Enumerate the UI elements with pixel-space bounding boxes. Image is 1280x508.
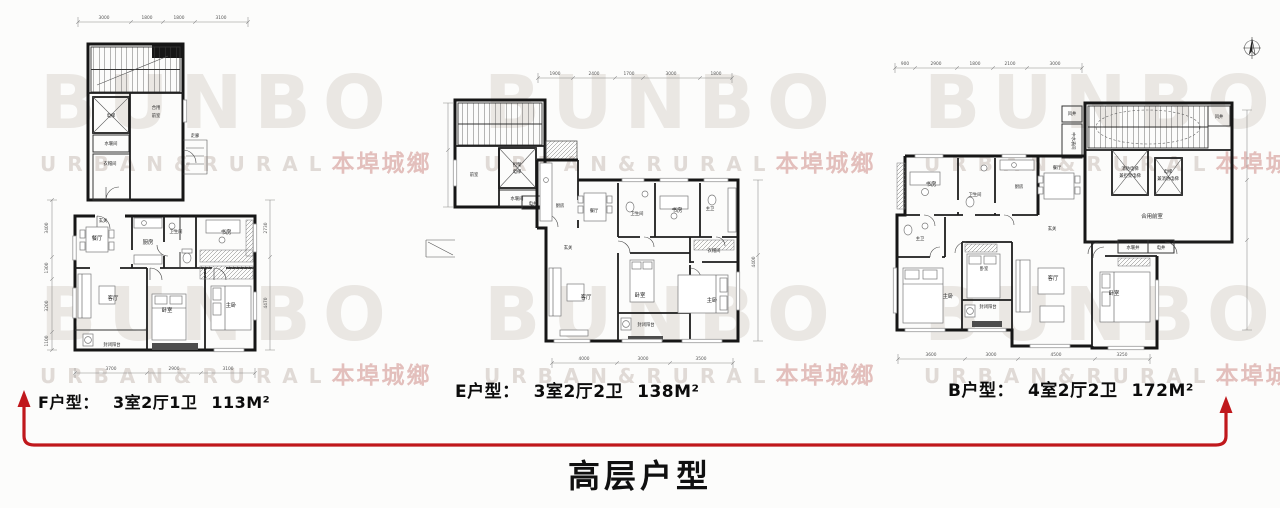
dim-label: 3700 [106, 366, 117, 372]
room-label-entry: 玄关 [564, 244, 573, 251]
room-label-living: 客厅 [1048, 274, 1059, 282]
dim-label: 2900 [931, 61, 942, 67]
dim-label: 1700 [624, 71, 635, 77]
dim-label: 1800 [970, 61, 981, 67]
room-label-mbath: 主卫 [916, 235, 925, 242]
dim-label: 3000 [986, 352, 997, 358]
dim-label: 3200 [44, 300, 50, 311]
room-label-kitchen: 厨房 [143, 238, 154, 246]
room-label-living: 客厅 [581, 293, 592, 301]
room-label-study: 书房 [672, 206, 683, 214]
floorplans-drawing: 3000 1800 1800 3100 3700 2900 3100 3400 … [0, 0, 1280, 508]
room-label-bed2: 卧室 [980, 265, 989, 272]
room-label-elevator: 电梯 [107, 112, 116, 119]
room-label-closet: 衣帽间 [708, 247, 721, 254]
room-label-bath: 卫生间 [631, 210, 644, 217]
room-label-entry: 玄关 [1048, 225, 1057, 232]
room-label-wardrobe: 衣帽间 [104, 160, 117, 167]
dim-label: 3000 [666, 71, 677, 77]
room-label-bed: 卧室 [162, 306, 173, 314]
room-label-vestibule: 前室 [152, 112, 161, 119]
dim-label: 4000 [579, 356, 590, 362]
room-label-master: 主卧 [707, 296, 718, 304]
room-label-midwater: 中水表间 [1070, 132, 1077, 149]
plan-b-caption: B户型：4室2厅2卫172M² [948, 376, 1194, 401]
room-label-mbath: 主卫 [706, 205, 715, 212]
plan-e-windows [453, 160, 739, 343]
dim-label: 2100 [1005, 61, 1016, 67]
room-label-balcony: 封闭阳台 [637, 321, 654, 328]
room-label-corridor: 走廊 [191, 132, 200, 139]
dim-label: 1800 [142, 15, 153, 21]
room-label-elevator: 电梯 [1164, 168, 1173, 175]
plan-e-caption-name: E户型： [455, 382, 520, 402]
dim-label: 900 [901, 61, 909, 67]
room-label-balcony: 封闭阳台 [979, 303, 996, 310]
room-label-lift: 担架 [513, 161, 522, 168]
room-label-elevator: 兼消防电梯 [1157, 175, 1179, 182]
room-label-bed3: 卧室 [1109, 289, 1120, 297]
dim-label: 3000 [1050, 61, 1061, 67]
room-label-vestibule: 合用 [152, 104, 161, 111]
scanned-floorplan-sheet: BUNBO U R B A N & R U R A L本埠城鄉 BUNBO U … [0, 0, 1280, 508]
plan-f-caption-name: F户型： [38, 393, 99, 412]
room-label-kitchen: 厨房 [1015, 183, 1024, 190]
room-label-front: 前室 [470, 171, 479, 178]
room-label-dining: 餐厅 [92, 234, 103, 242]
plan-e-caption: E户型：3室2厅2卫138M² [455, 377, 699, 402]
room-label-study: 书房 [926, 180, 937, 188]
plan-e: 1900 2400 1700 3000 1800 4000 3000 3500 … [426, 71, 763, 368]
room-label-shaft: 风井 [1068, 110, 1077, 117]
room-label-dining: 餐厅 [1053, 164, 1062, 171]
room-label-study: 书房 [221, 228, 232, 236]
room-label-fire-elevator: 消防电梯 [1121, 165, 1139, 172]
plan-b-caption-name: B户型： [948, 381, 1014, 401]
room-label-bath: 卫生间 [170, 228, 183, 235]
plan-e-caption-area: 138M² [637, 382, 699, 402]
dim-label: 2400 [589, 71, 600, 77]
room-label-dining: 餐厅 [590, 207, 599, 214]
room-label-water: 水暖间 [105, 140, 118, 147]
dim-label: 4500 [1051, 352, 1062, 358]
room-label-wshaft: 水暖井 [1127, 244, 1141, 251]
dim-label: 4470 [263, 297, 269, 308]
room-label-eshaft: 电井 [1157, 244, 1166, 251]
room-label-shaft: 风井 [1215, 113, 1224, 120]
room-label-master: 主卧 [226, 301, 237, 309]
plan-f: 3000 1800 1800 3100 3700 2900 3100 3400 … [44, 15, 275, 378]
plan-b: 900 2900 1800 2100 3000 3600 3000 4500 3… [893, 37, 1261, 364]
dim-label: 3000 [638, 356, 649, 362]
dim-label: 1800 [711, 71, 722, 77]
dim-label: 2900 [169, 366, 180, 372]
page-title: 高层户型 [0, 451, 1280, 497]
dim-label: 3600 [926, 352, 937, 358]
dim-label: 3100 [223, 366, 234, 372]
north-compass-icon [1243, 37, 1261, 59]
room-label-fire-elevator: 兼担架电梯 [1119, 172, 1141, 179]
room-label-kitchen: 厨房 [556, 202, 565, 209]
plan-b-walls [897, 103, 1232, 348]
room-label-water: 水暖间 [511, 195, 524, 202]
plan-e-caption-layout: 3室2厅2卫 [534, 382, 624, 402]
plan-f-caption-layout: 3室2厅1卫 [113, 393, 197, 412]
plan-b-caption-layout: 4室2厅2卫 [1028, 381, 1118, 401]
dim-label: 3400 [44, 222, 50, 233]
room-label-master: 主卧 [943, 292, 954, 300]
room-label-entry: 玄关 [99, 217, 108, 224]
dim-label: 1100 [44, 335, 50, 346]
room-label-balcony: 封闭阳台 [103, 341, 120, 348]
dim-label: 1300 [44, 262, 50, 273]
room-label-bed: 卧室 [635, 291, 646, 299]
dim-label: 2730 [263, 222, 269, 233]
plan-b-caption-area: 172M² [1131, 381, 1193, 401]
plan-f-caption-area: 113M² [211, 393, 270, 412]
dim-label: 4400 [751, 256, 757, 267]
dim-label: 3500 [696, 356, 707, 362]
room-label-lift: 电梯 [513, 168, 522, 175]
room-label-bath: 卫生间 [969, 191, 982, 198]
plan-f-caption: F户型：3室2厅1卫113M² [38, 389, 270, 413]
dim-label: 3250 [1117, 352, 1128, 358]
room-label-lobby: 合用前室 [1141, 212, 1163, 220]
dim-label: 3100 [216, 15, 227, 21]
dim-label: 1900 [550, 71, 561, 77]
room-label-eshaft: 电井 [529, 200, 538, 207]
dim-label: 1800 [174, 15, 185, 21]
room-label-living: 客厅 [108, 294, 119, 302]
dim-label: 3000 [99, 15, 110, 21]
